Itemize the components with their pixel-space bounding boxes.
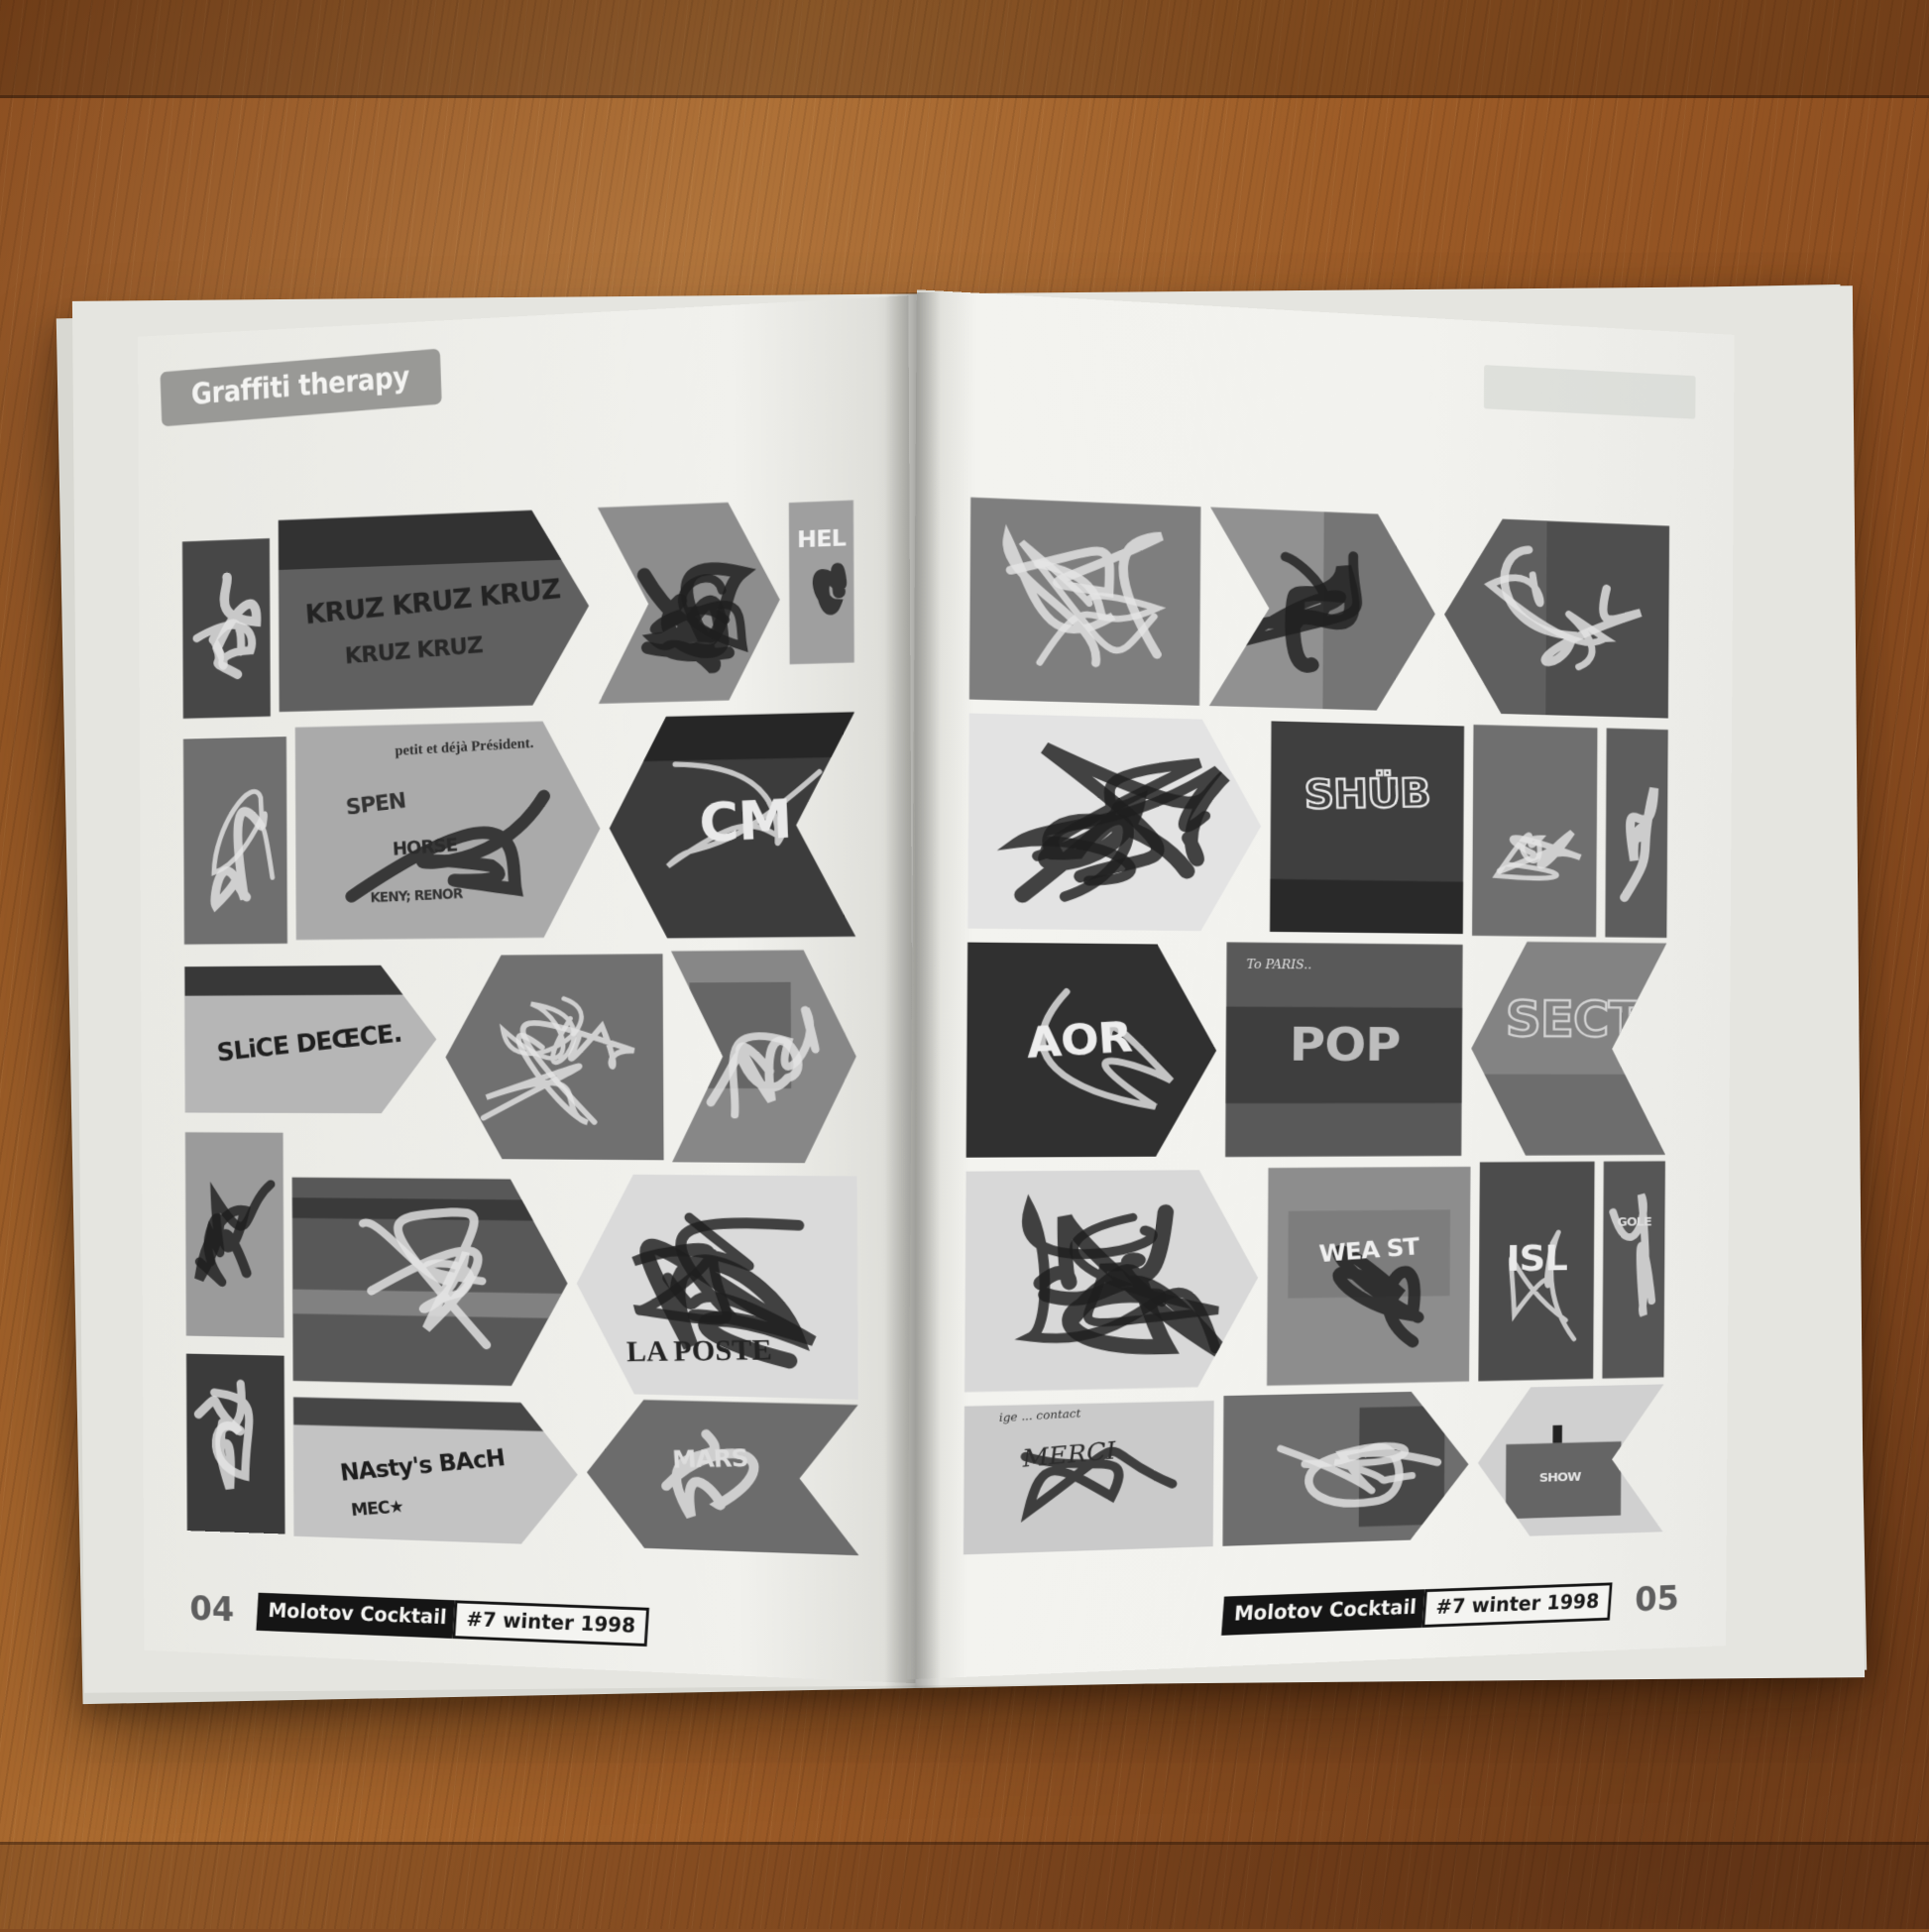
collage-photo-tile <box>186 1353 285 1534</box>
graffiti-text: CM <box>698 787 793 854</box>
graffiti-text: AOR <box>1025 1012 1133 1069</box>
footer-brand-group: Molotov Cocktail #7 winter 1998 <box>258 1592 649 1646</box>
page-number: 05 <box>1635 1579 1679 1620</box>
left-page-footer: 04 Molotov Cocktail #7 winter 1998 <box>189 1589 648 1647</box>
graffiti-collage-left: KRUZ KRUZ KRUZKRUZ KRUZHELpetit et déjà … <box>156 407 889 1571</box>
graffiti-text: MARS <box>672 1444 749 1474</box>
graffiti-text: SHÜB <box>1304 769 1430 818</box>
collage-photo-tile <box>1472 725 1597 937</box>
graffiti-text: HORSE <box>392 836 458 860</box>
page-number: 04 <box>189 1589 234 1630</box>
graffiti-text: ISL <box>1507 1239 1568 1281</box>
ghost-header-badge <box>1484 365 1696 419</box>
magazine-right-page: SHÜBAORTo PARIS..POPSECTWEA STISLGOLEige… <box>907 289 1734 1679</box>
graffiti-text: MEC★ <box>350 1498 404 1521</box>
graffiti-text: POP <box>1290 1017 1401 1072</box>
footer-brand-group: Molotov Cocktail #7 winter 1998 <box>1223 1582 1613 1635</box>
issue-badge: #7 winter 1998 <box>453 1600 650 1647</box>
graffiti-collage-right: SHÜBAORTo PARIS..POPSECTWEA STISLGOLEige… <box>934 407 1699 1569</box>
section-header-label: Graffiti therapy <box>190 360 409 412</box>
graffiti-text: SHOW <box>1539 1470 1582 1486</box>
graffiti-text: GOLE <box>1617 1215 1651 1230</box>
graffiti-text: SECT <box>1505 992 1642 1049</box>
issue-badge: #7 winter 1998 <box>1422 1582 1614 1628</box>
graffiti-text: HEL <box>797 525 847 554</box>
magazine-left-page: Graffiti therapy KRUZ KRUZ KRUZKRUZ KRUZ… <box>138 295 916 1683</box>
graffiti-text: To PARIS.. <box>1247 957 1312 971</box>
graffiti-text: LA POSTE <box>626 1334 773 1368</box>
brand-badge: Molotov Cocktail <box>256 1592 458 1638</box>
photo-of-magazine-on-table: { "scene": { "description": "Open magazi… <box>0 0 1929 1929</box>
collage-photo-tile <box>587 1399 859 1555</box>
section-header-badge: Graffiti therapy <box>160 349 441 427</box>
collage-photo-tile <box>1602 1161 1665 1378</box>
brand-badge: Molotov Cocktail <box>1221 1589 1428 1636</box>
right-page-footer: Molotov Cocktail #7 winter 1998 05 <box>1223 1579 1679 1636</box>
